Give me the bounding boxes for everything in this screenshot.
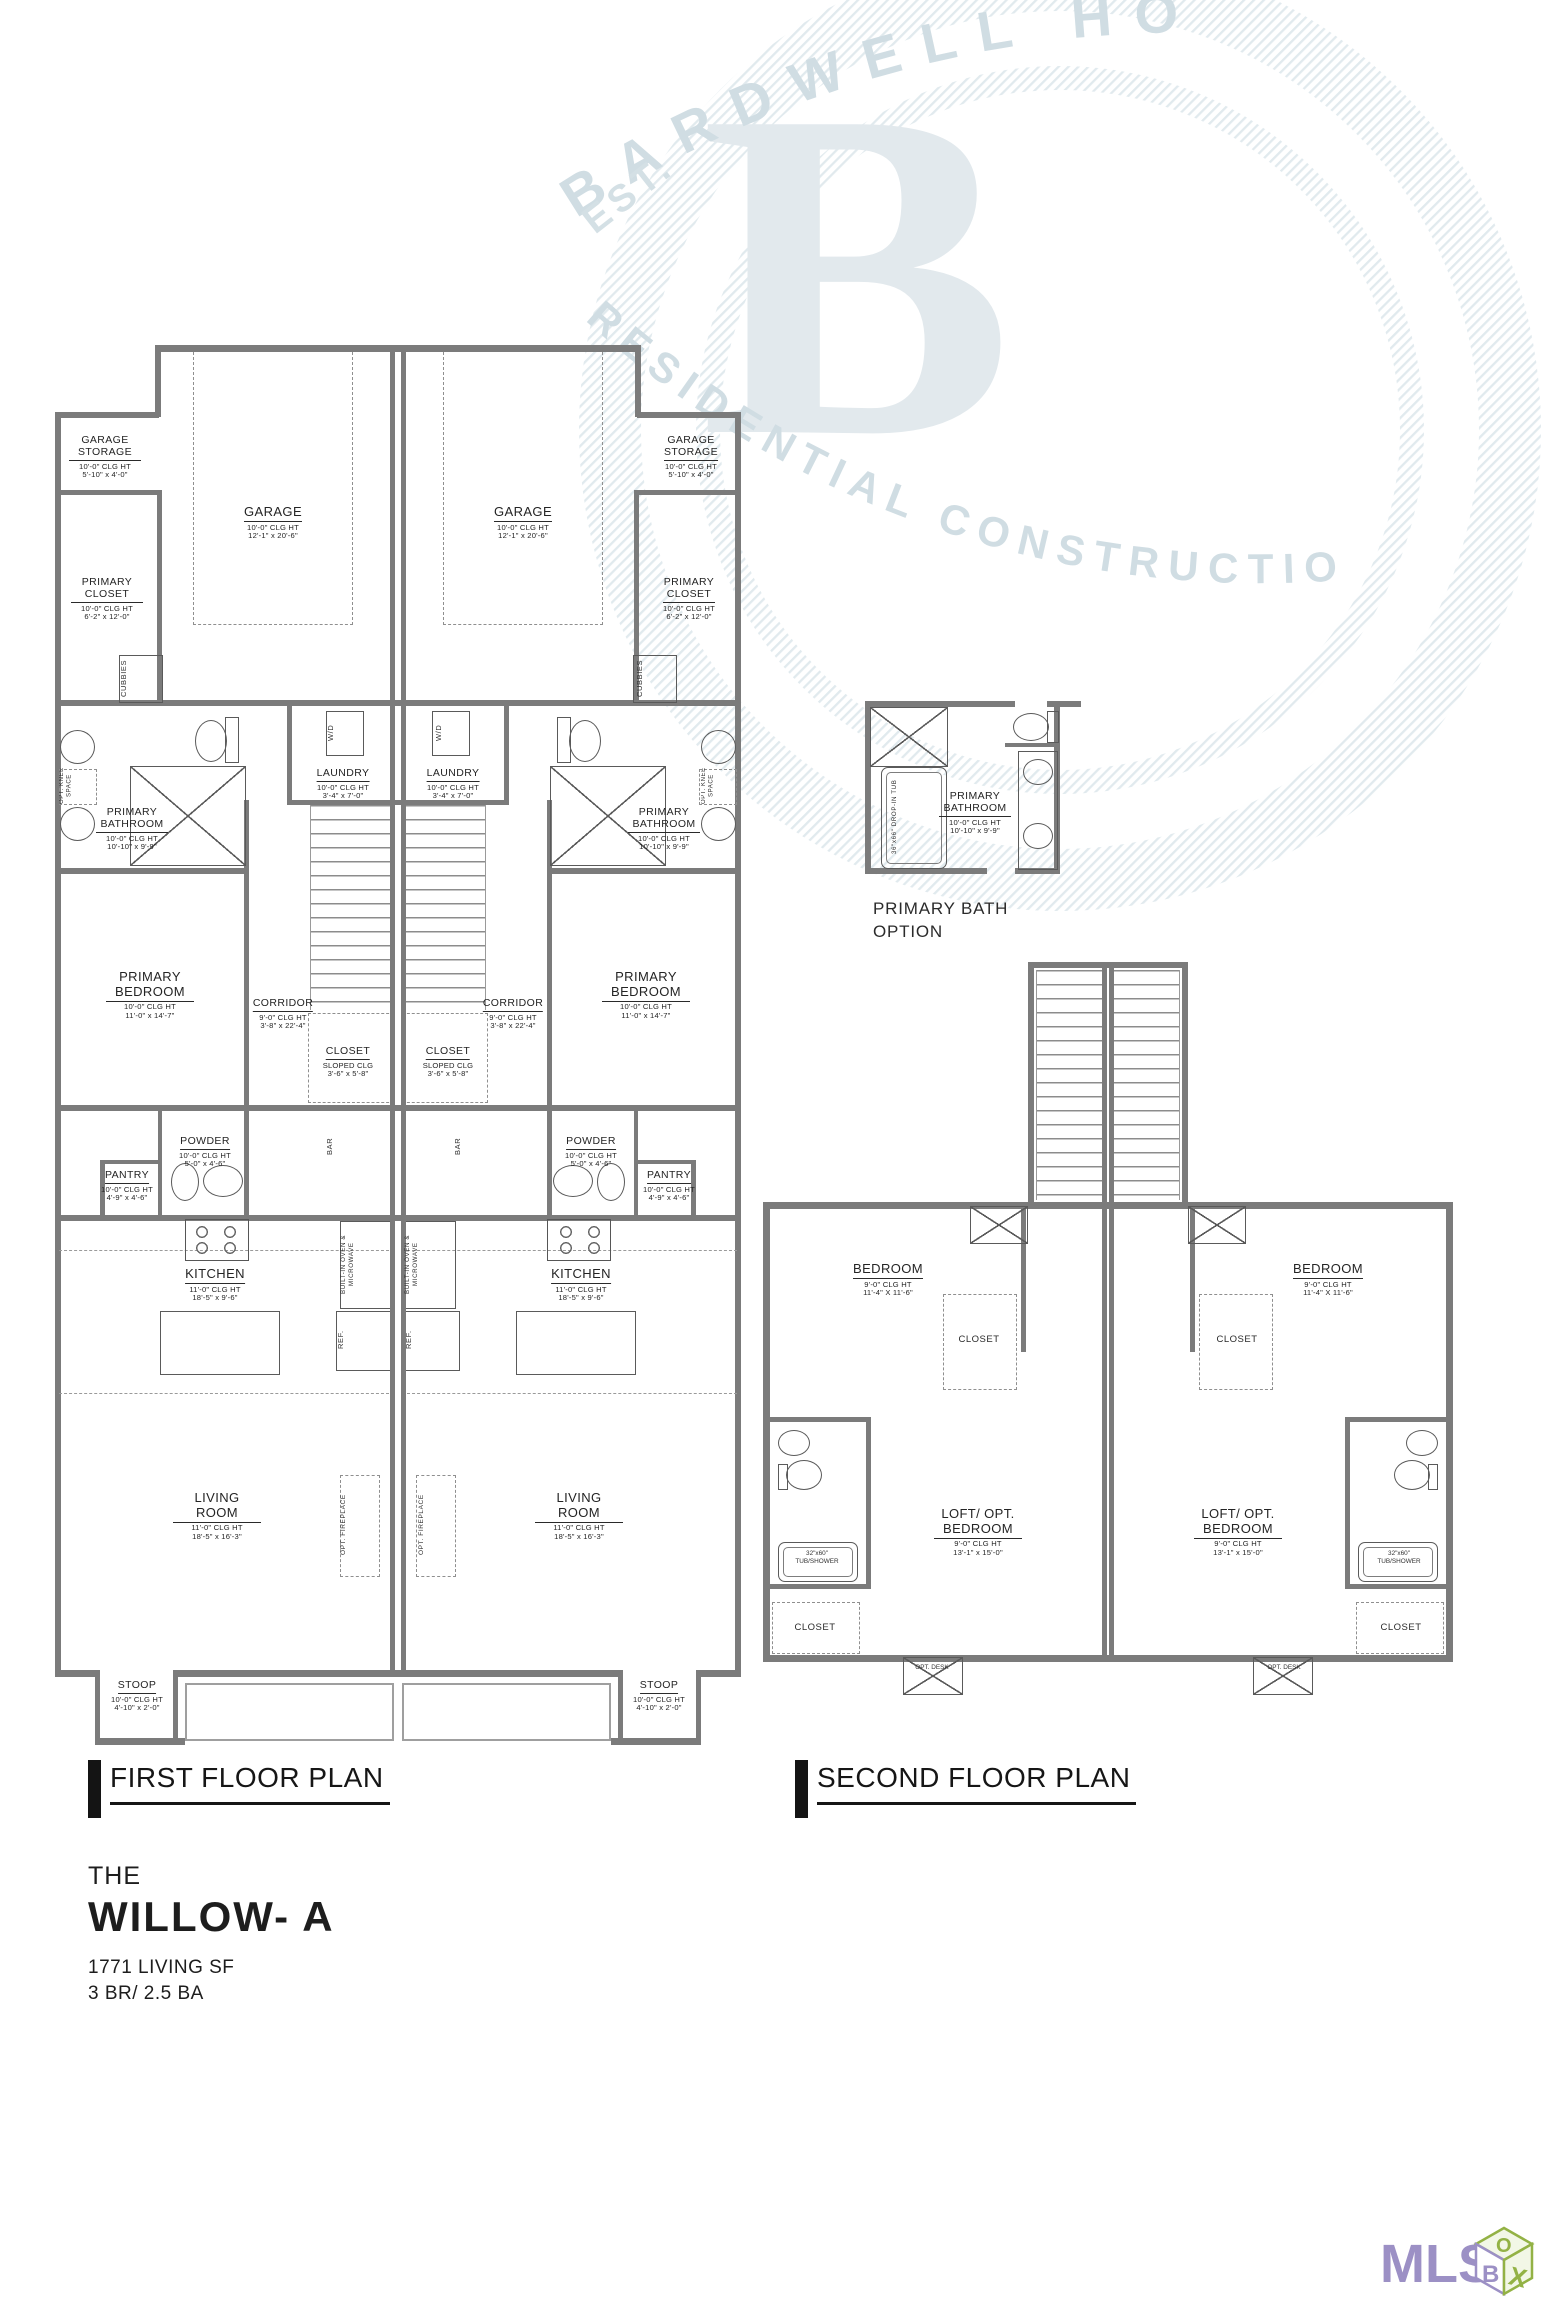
- room-label-corridor: CORRIDOR9'-0" CLG HT3'-8" x 22'-4": [483, 993, 543, 1031]
- label-bar: BAR: [453, 1123, 471, 1169]
- label-opt-fireplace: OPT. FIREPLACE: [418, 1475, 456, 1575]
- label-cubbies: CUBBIES: [635, 655, 677, 701]
- wall: [55, 490, 162, 495]
- wall: [504, 700, 509, 805]
- wall: [1345, 1417, 1350, 1589]
- wall: [635, 345, 641, 417]
- opt-desk: [1253, 1657, 1313, 1695]
- room-label-kitchen: KITCHEN11'-0" CLG HT18'-5" x 9'-6": [185, 1265, 245, 1303]
- room-label-bedroom: BEDROOM9'-0" CLG HT11'-4" X 11'-6": [1293, 1260, 1363, 1298]
- wall: [770, 1584, 870, 1589]
- room-label-primary-closet: PRIMARY CLOSET10'-0" CLG HT6'-2" x 12'-0…: [663, 577, 715, 622]
- wall: [55, 1670, 100, 1677]
- first-floor-plan: GARAGE STORAGE10'-0" CLG HT5'-10" x 4'-0…: [55, 345, 741, 1757]
- room-label-laundry: LAUNDRY10'-0" CLG HT3'-4" x 7'-0": [427, 763, 480, 801]
- room-label-corridor: CORRIDOR9'-0" CLG HT3'-8" x 22'-4": [253, 993, 313, 1031]
- sink: [60, 807, 95, 841]
- wall: [1108, 962, 1188, 968]
- label-washer-dryer: W/D: [326, 711, 362, 754]
- room-label-pantry: PANTRY10'-0" CLG HT4'-9" x 4'-6": [643, 1165, 695, 1203]
- party-wall: [390, 345, 395, 1677]
- wall: [1346, 1584, 1446, 1589]
- wall: [763, 1202, 770, 1662]
- wall: [175, 1670, 398, 1677]
- linen-cabinet: [970, 1206, 1028, 1244]
- plan-living-sf: 1771 LIVING SF: [88, 1955, 335, 1981]
- toilet: [1013, 713, 1049, 741]
- room-label-closet: CLOSETSLOPED CLG3'-6" x 5'-8": [423, 1041, 474, 1079]
- second-floor-unit-right: [1108, 962, 1458, 1702]
- porch-outline: [185, 1683, 394, 1741]
- mls-logo: MLS O B X: [1380, 2222, 1538, 2300]
- room-label-garage: GARAGE10'-0" CLG HT12'-1" x 20'-6": [494, 503, 552, 541]
- room-label-kitchen: KITCHEN11'-0" CLG HT18'-5" x 9'-6": [551, 1265, 611, 1303]
- wall: [1108, 1202, 1453, 1209]
- wall: [100, 1160, 160, 1164]
- room-divider-dashed-line: [59, 1393, 389, 1394]
- room-label-pantry: PANTRY10'-0" CLG HT4'-9" x 4'-6": [101, 1165, 153, 1203]
- toilet-tank: [225, 717, 239, 763]
- wall: [611, 1738, 701, 1745]
- wall: [1005, 743, 1060, 747]
- wall: [1446, 1202, 1453, 1662]
- stairs: [1112, 970, 1180, 1200]
- wall: [55, 412, 159, 418]
- toilet: [1394, 1460, 1430, 1490]
- party-wall: [401, 345, 406, 1677]
- room-label-living-room: LIVING ROOM11'-0" CLG HT18'-5" x 16'-3": [535, 1491, 623, 1541]
- room-label-laundry: LAUNDRY10'-0" CLG HT3'-4" x 7'-0": [317, 763, 370, 801]
- title-text: SECOND FLOOR PLAN: [817, 1760, 1136, 1805]
- plan-prefix: THE: [88, 1862, 335, 1891]
- wall: [398, 345, 641, 352]
- wall: [55, 1105, 398, 1111]
- kitchen-island: [516, 1311, 636, 1375]
- cooktop: [547, 1219, 611, 1261]
- label-opt-desk: OPT. DESK: [915, 1664, 949, 1672]
- wall: [55, 868, 247, 874]
- linen-cabinet: [1188, 1206, 1246, 1244]
- bath-option-caption: PRIMARY BATH OPTION: [873, 898, 1033, 944]
- wall: [636, 1160, 696, 1164]
- wall: [398, 700, 741, 706]
- wall: [696, 1670, 701, 1745]
- sink: [778, 1430, 810, 1456]
- label-closet: CLOSET: [794, 1622, 835, 1633]
- wall: [866, 1417, 871, 1589]
- room-label-stoop: STOOP10'-0" CLG HT4'-10" x 2'-0": [633, 1675, 685, 1713]
- room-label-garage-storage: GARAGE STORAGE10'-0" CLG HT5'-10" x 4'-0…: [664, 435, 718, 480]
- wall: [155, 345, 161, 417]
- label-oven-microwave: BUILT-IN OVEN & MICROWAVE: [340, 1221, 392, 1307]
- wall: [549, 868, 741, 874]
- label-opt-desk: OPT. DESK: [1267, 1664, 1301, 1672]
- wall: [637, 412, 741, 418]
- room-label-primary-bathroom: PRIMARY BATHROOM10'-0" CLG HT10'-10" x 9…: [628, 807, 700, 852]
- party-wall: [1102, 962, 1107, 1662]
- room-label-primary-closet: PRIMARY CLOSET10'-0" CLG HT6'-2" x 12'-0…: [71, 577, 143, 622]
- stairs: [310, 805, 394, 1010]
- sink: [701, 807, 736, 841]
- label-cubbies: CUBBIES: [119, 655, 161, 701]
- room-label-primary-bedroom: PRIMARY BEDROOM10'-0" CLG HT11'-0" x 14'…: [106, 970, 194, 1020]
- room-label-bedroom: BEDROOM9'-0" CLG HT11'-4" X 11'-6": [853, 1260, 923, 1298]
- title-bar: [795, 1760, 808, 1818]
- label-closet: CLOSET: [1216, 1334, 1257, 1345]
- toilet: [195, 720, 227, 762]
- title-text: FIRST FLOOR PLAN: [110, 1760, 390, 1805]
- room-label-closet: CLOSETSLOPED CLG3'-6" x 5'-8": [323, 1041, 374, 1079]
- wall: [1182, 962, 1188, 1208]
- room-label-garage-storage: GARAGE STORAGE10'-0" CLG HT5'-10" x 4'-0…: [69, 435, 141, 480]
- room-label-loft: LOFT/ OPT. BEDROOM9'-0" CLG HT13'-1" x 1…: [1194, 1507, 1282, 1557]
- kitchen-island: [160, 1311, 280, 1375]
- sink: [203, 1165, 243, 1197]
- wall: [1028, 962, 1108, 968]
- room-label-primary-bathroom: PRIMARY BATHROOM10'-0" CLG HT10'-10" x 9…: [96, 807, 168, 852]
- toilet: [786, 1460, 822, 1490]
- wall: [55, 412, 61, 1677]
- label-closet: CLOSET: [958, 1334, 999, 1345]
- room-label-powder: POWDER10'-0" CLG HT5'-0" x 4'-6": [565, 1131, 617, 1169]
- sink: [1023, 759, 1053, 785]
- wall: [95, 1670, 100, 1745]
- room-label-living-room: LIVING ROOM11'-0" CLG HT18'-5" x 16'-3": [173, 1491, 261, 1541]
- first-floor-title: FIRST FLOOR PLAN: [88, 1760, 390, 1818]
- sink: [701, 730, 736, 764]
- label-knee-space: OPT. KNEE SPACE: [701, 765, 737, 807]
- mls-cube-letter-b: B: [1482, 2261, 1499, 2288]
- wall: [55, 700, 398, 706]
- label-tub-shower: 32"x60" TUB/SHOWER: [785, 1550, 849, 1567]
- floorplan-sheet: B BARDWELL HO RESIDENTIAL CONSTRUCTIO ES…: [0, 0, 1542, 2304]
- second-floor-title: SECOND FLOOR PLAN: [795, 1760, 1136, 1818]
- room-label-garage: GARAGE10'-0" CLG HT12'-1" x 20'-6": [244, 503, 302, 541]
- sink: [60, 730, 95, 764]
- label-drop-in-tub: 36"x66" DROP-IN TUB: [891, 777, 935, 857]
- plan-name: WILLOW- A: [88, 1893, 335, 1941]
- wall: [1028, 962, 1034, 1208]
- second-floor-unit-left: [758, 962, 1108, 1702]
- wall: [155, 345, 398, 352]
- label-refrigerator: REF.: [336, 1311, 392, 1369]
- wall: [634, 490, 741, 495]
- second-floor-plan: BEDROOM9'-0" CLG HT11'-4" X 11'-6" BEDRO…: [758, 962, 1458, 1702]
- mls-cube-letter-o: O: [1496, 2235, 1512, 2257]
- party-wall: [1109, 962, 1114, 1662]
- label-bar: BAR: [325, 1123, 343, 1169]
- wall: [173, 1670, 178, 1745]
- label-closet: CLOSET: [1380, 1622, 1421, 1633]
- sink: [1023, 823, 1053, 849]
- room-label-powder: POWDER10'-0" CLG HT5'-0" x 4'-6": [179, 1131, 231, 1169]
- sink: [1406, 1430, 1438, 1456]
- stairs: [1036, 970, 1104, 1200]
- label-opt-fireplace: OPT. FIREPLACE: [340, 1475, 378, 1575]
- room-divider-dashed-line: [407, 1393, 737, 1394]
- shower: [870, 707, 948, 767]
- label-oven-microwave: BUILT-IN OVEN & MICROWAVE: [404, 1221, 456, 1307]
- label-refrigerator: REF.: [404, 1311, 460, 1369]
- label-washer-dryer: W/D: [434, 711, 470, 754]
- plan-bed-bath: 3 BR/ 2.5 BA: [88, 1981, 335, 2007]
- room-label-primary-bedroom: PRIMARY BEDROOM10'-0" CLG HT11'-0" x 14'…: [602, 970, 690, 1020]
- wall: [287, 700, 292, 805]
- wall: [735, 412, 741, 1677]
- wall: [95, 1738, 185, 1745]
- wall: [618, 1670, 623, 1745]
- room-label-primary-bathroom-option: PRIMARY BATHROOM10'-0" CLG HT10'-10" x 9…: [939, 791, 1011, 836]
- plan-info: THE WILLOW- A 1771 LIVING SF 3 BR/ 2.5 B…: [88, 1862, 335, 2006]
- garage-door-dashed: [193, 352, 353, 625]
- wall: [398, 1105, 741, 1111]
- toilet-tank: [1047, 711, 1059, 743]
- label-knee-space: OPT. KNEE SPACE: [59, 765, 95, 807]
- room-label-stoop: STOOP10'-0" CLG HT4'-10" x 2'-0": [111, 1675, 163, 1713]
- sink: [553, 1165, 593, 1197]
- toilet-tank: [557, 717, 571, 763]
- porch-outline: [402, 1683, 611, 1741]
- label-tub-shower: 32"x60" TUB/SHOWER: [1367, 1550, 1431, 1567]
- wall: [770, 1417, 870, 1422]
- stairs: [402, 805, 486, 1010]
- garage-door-dashed: [443, 352, 603, 625]
- toilet: [569, 720, 601, 762]
- room-label-loft: LOFT/ OPT. BEDROOM9'-0" CLG HT13'-1" x 1…: [934, 1507, 1022, 1557]
- opt-desk: [903, 1657, 963, 1695]
- wall: [763, 1202, 1108, 1209]
- wall: [1047, 701, 1081, 707]
- cooktop: [185, 1219, 249, 1261]
- wall: [398, 1670, 621, 1677]
- wall: [1346, 1417, 1446, 1422]
- title-bar: [88, 1760, 101, 1818]
- primary-bath-option-plan: 36"x66" DROP-IN TUB PRIMARY BATHROOM10'-…: [855, 683, 1095, 993]
